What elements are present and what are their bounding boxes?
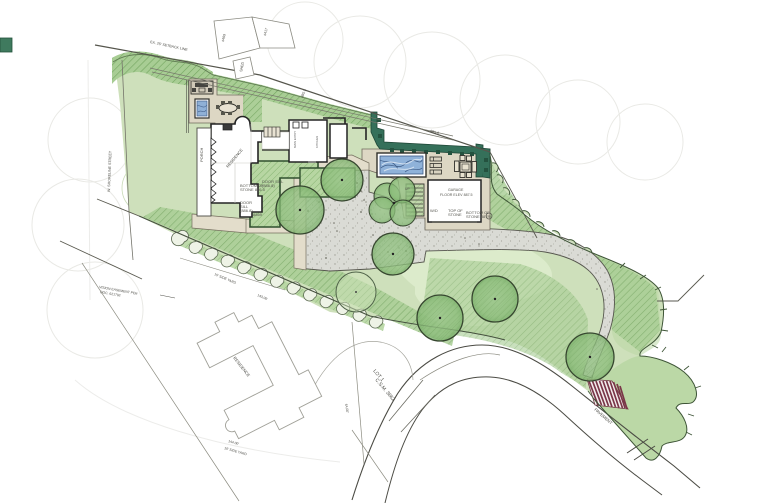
svg-text:FLOOR ELEV 887.5: FLOOR ELEV 887.5 — [440, 193, 473, 197]
svg-text:GARAGE: GARAGE — [448, 188, 464, 192]
svg-text:STONE: STONE — [448, 212, 462, 217]
svg-text:MAIN ENTRY: MAIN ENTRY — [293, 131, 297, 148]
svg-text:KITCHEN: KITCHEN — [315, 136, 319, 148]
svg-text:8869: 8869 — [253, 212, 263, 217]
svg-text:STONE 887: STONE 887 — [466, 214, 488, 219]
svg-text:PORCH: PORCH — [199, 147, 204, 162]
svg-text:UP: UP — [405, 187, 410, 191]
svg-text:W/D: W/D — [430, 208, 438, 213]
svg-text:(886.8): (886.8) — [262, 183, 275, 188]
svg-text:(886.8): (886.8) — [240, 208, 253, 213]
